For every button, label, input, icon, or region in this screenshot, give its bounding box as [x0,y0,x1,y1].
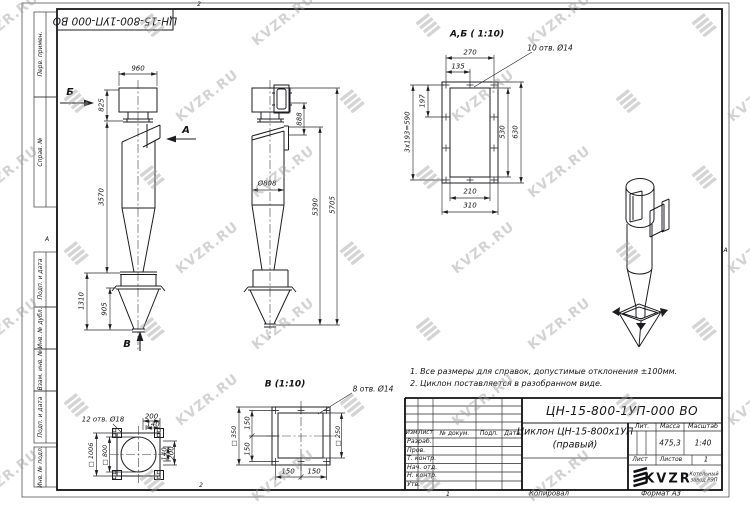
dim-150-bottom2-label: 150 [307,469,320,476]
dim-5705-label: 5705 [329,196,336,214]
titleblock-name-line1: Циклон ЦН-15-800х1УП [517,427,634,437]
titleblock-name-line2: (правый) [553,440,598,450]
titleblock-designation: ЦН-15-800-1УП-000 ВО [546,405,698,417]
dim-200-right-label: 200 [168,446,175,459]
row-nkontr-label: Н. контр. [407,473,437,479]
section-ab-title: А,Б ( 1:10) [450,31,504,40]
section-ab-holes-note: 10 отв. Ø14 [527,44,573,52]
view-arrow-a-label: А [182,126,190,136]
col-data-label: Дата [504,431,520,437]
margin-label-inv-podl: Инв. № подл. [38,446,44,487]
kvzr-logo-text: KVZR [644,472,692,485]
dim-250-label: □ 250 [334,426,341,447]
row-nachotd-label: Нач. отд. [407,465,437,471]
col-doc-label: № докум. [440,431,470,437]
dim-905-label: 905 [101,302,108,315]
dim-888-label: 888 [296,112,303,125]
dim-135-label: 135 [451,63,464,70]
kvzr-logo-sub2: завод РЭП [690,478,717,483]
margin-label-sprav-n: Справ. № [38,137,44,166]
zone-mark-top: 2 [197,2,201,8]
lit-label: Лит. [635,424,650,430]
zone-mark-left: А [45,237,49,243]
dim-800-label: □ 800 [101,444,108,465]
mass-label: Масса [660,424,680,430]
dim-825-label: 825 [98,98,105,111]
row-prov-label: Пров. [407,448,425,454]
dim-5390-label: 5390 [312,198,319,216]
sheets-value: 1 [704,457,708,464]
col-izm-label: Изм [406,431,418,437]
sheets-label: Листов [660,457,682,463]
dim-1006-label: □ 1006 [87,442,94,467]
dim-808-label: Ø808 [258,181,277,188]
copied-by-label: Копировал [529,490,569,497]
scale-label: Масштаб [688,424,718,430]
dim-210-label: 210 [463,189,476,196]
bottom-flange-holes-note: 12 отв. Ø18 [82,417,125,424]
margin-label-vzam-inv: Взам. инв. № [38,350,44,391]
dim-350-label: □ 350 [231,426,238,447]
side-view-geometry [244,80,340,338]
margin-label-perv-primen: Перв. примен. [38,31,44,76]
margin-label-inv-dubl: Инв. № дубл. [38,307,44,348]
dim-3x193-label: 3x193=590 [404,111,411,152]
dim-630-label: 630 [512,125,519,138]
dim-200-top-label: 200 [145,413,158,420]
top-designation-label: ЦН-15-800-1УП-000 ВО [53,14,177,25]
dim-3570-label: 3570 [98,188,105,206]
mass-value: 475,3 [659,439,680,447]
col-podp-label: Подп. [480,431,498,437]
dim-140-top-label: 140 [146,421,159,428]
dim-960-label: 960 [131,66,144,73]
zone-mark-right: А [723,248,727,254]
view-arrow-v-label: В [123,340,131,350]
outlet-flange-holes-note: 8 отв. Ø14 [353,385,394,393]
scale-value: 1:40 [695,439,712,447]
copy-number: 1 [446,490,450,497]
row-tkontr-label: Т. контр. [407,456,436,462]
zone-mark-bottom: 2 [199,483,203,489]
margin-label-podp-data-1: Подп. и дата [38,259,44,300]
outlet-flange-title: В (1:10) [265,381,306,390]
sheet-label: Лист [632,457,647,463]
dim-1310-label: 1310 [78,292,85,310]
note-1: 1. Все размеры для справок, допустимые о… [410,368,677,376]
dim-310-label: 310 [463,203,476,210]
dim-197-label: 197 [419,94,426,107]
dim-530-label: 530 [499,125,506,138]
dim-150-bottom1-label: 150 [281,469,294,476]
dim-150-left1-label: 150 [244,416,251,429]
margin-label-podp-data-2: Подп. и дата [38,397,44,438]
drawing-sheet: { "watermark": { "text": "KVZR.RU" }, "f… [0,0,750,500]
note-2: 2. Циклон поставляется в разобранном вид… [410,380,602,388]
dim-270-label: 270 [463,49,476,56]
row-razrab-label: Разраб. [407,439,432,445]
view-arrow-b-label: Б [66,88,74,98]
dim-150-left2-label: 150 [244,442,251,455]
col-list-label: Лист [418,431,433,437]
row-utv-label: Утв. [407,482,420,488]
format-label: Формат А3 [641,490,681,497]
isometric-view-geometry [612,179,669,348]
